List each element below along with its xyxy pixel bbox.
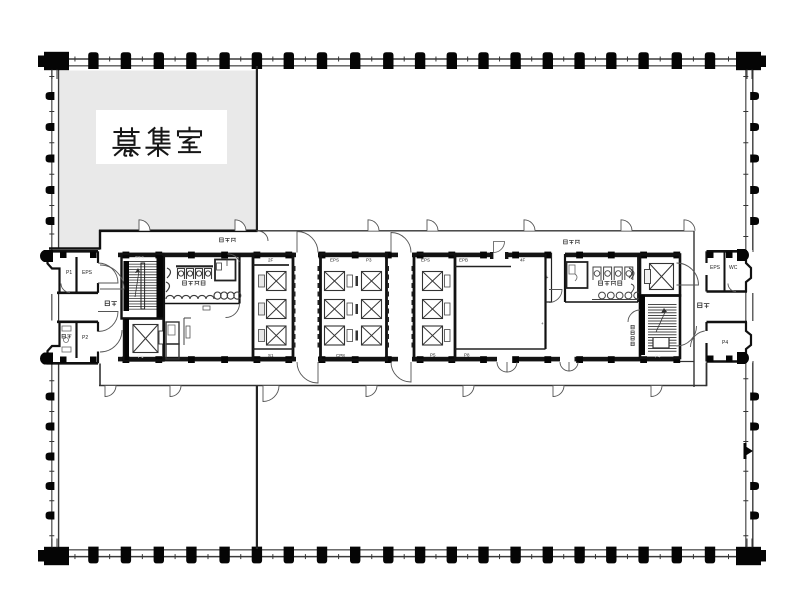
svg-text:P1: P1 bbox=[66, 270, 72, 276]
svg-text:+: + bbox=[546, 275, 549, 281]
svg-text:CP8: CP8 bbox=[336, 353, 345, 358]
svg-text:P8: P8 bbox=[464, 353, 470, 358]
svg-text:EPS: EPS bbox=[710, 265, 721, 271]
svg-text:EPS: EPS bbox=[82, 270, 93, 276]
svg-text:EPS: EPS bbox=[135, 256, 144, 261]
svg-text:EPS: EPS bbox=[421, 258, 430, 263]
svg-text:S1: S1 bbox=[268, 353, 274, 358]
svg-text:EPB: EPB bbox=[459, 258, 468, 263]
svg-text:P5: P5 bbox=[430, 353, 436, 358]
svg-text:2F: 2F bbox=[268, 258, 274, 263]
svg-text:4F: 4F bbox=[520, 258, 526, 263]
svg-text:P2: P2 bbox=[82, 335, 88, 341]
svg-text:P3: P3 bbox=[366, 258, 372, 263]
svg-text:EPS: EPS bbox=[330, 258, 339, 263]
svg-text:+: + bbox=[541, 321, 544, 326]
svg-text:P4: P4 bbox=[722, 340, 728, 346]
svg-text:P1: P1 bbox=[138, 354, 144, 359]
svg-text:WC: WC bbox=[729, 265, 738, 271]
svg-text:P4: P4 bbox=[655, 354, 661, 359]
